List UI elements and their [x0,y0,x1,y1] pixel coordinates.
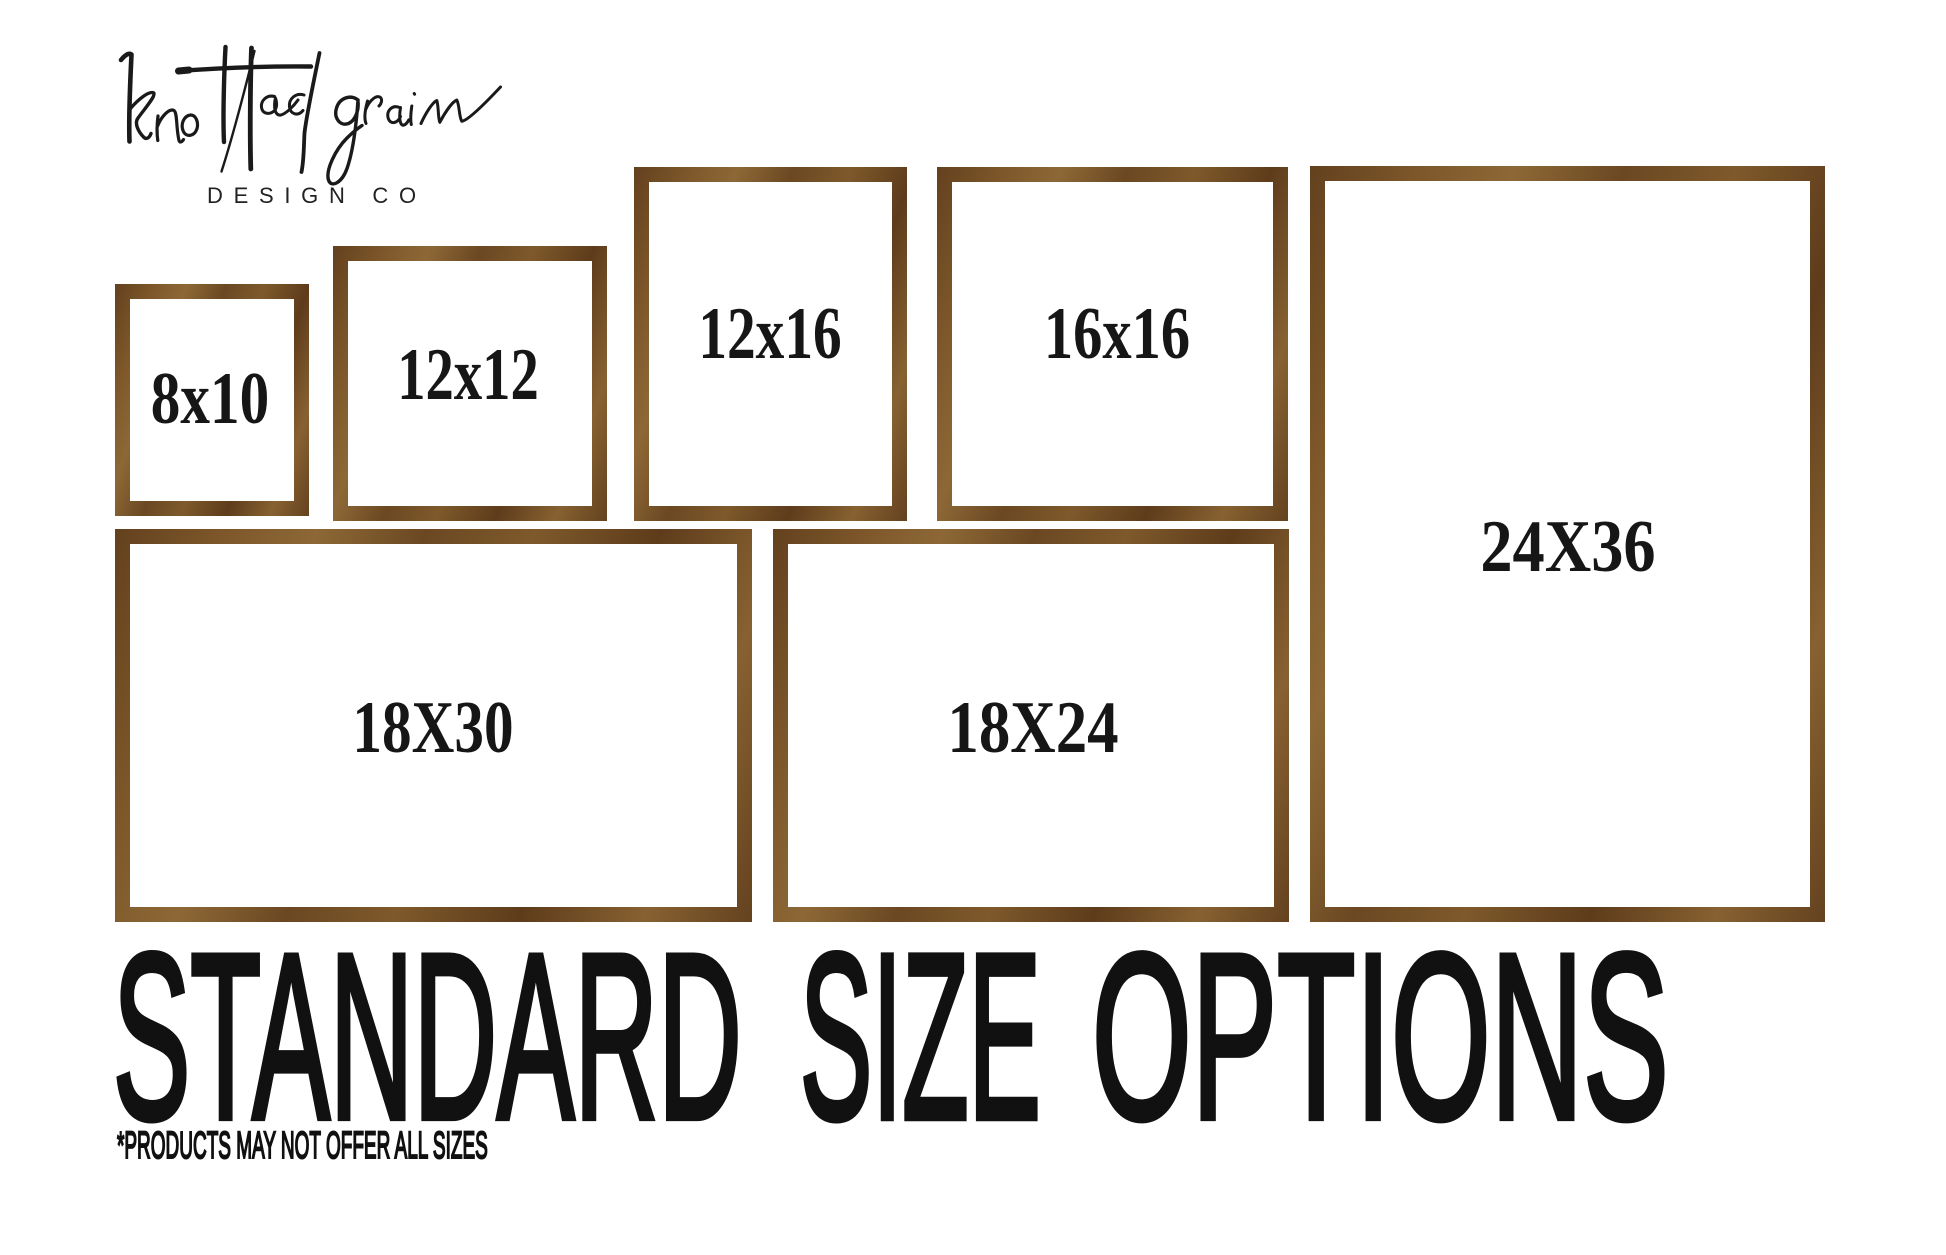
svg-text:DESIGN CO: DESIGN CO [207,183,427,208]
svg-text:SIZE: SIZE [800,905,1041,1168]
svg-text:*PRODUCTS MAY NOT OFFER ALL SI: *PRODUCTS MAY NOT OFFER ALL SIZES [117,1125,488,1167]
svg-text:OPTIONS: OPTIONS [1092,905,1669,1168]
